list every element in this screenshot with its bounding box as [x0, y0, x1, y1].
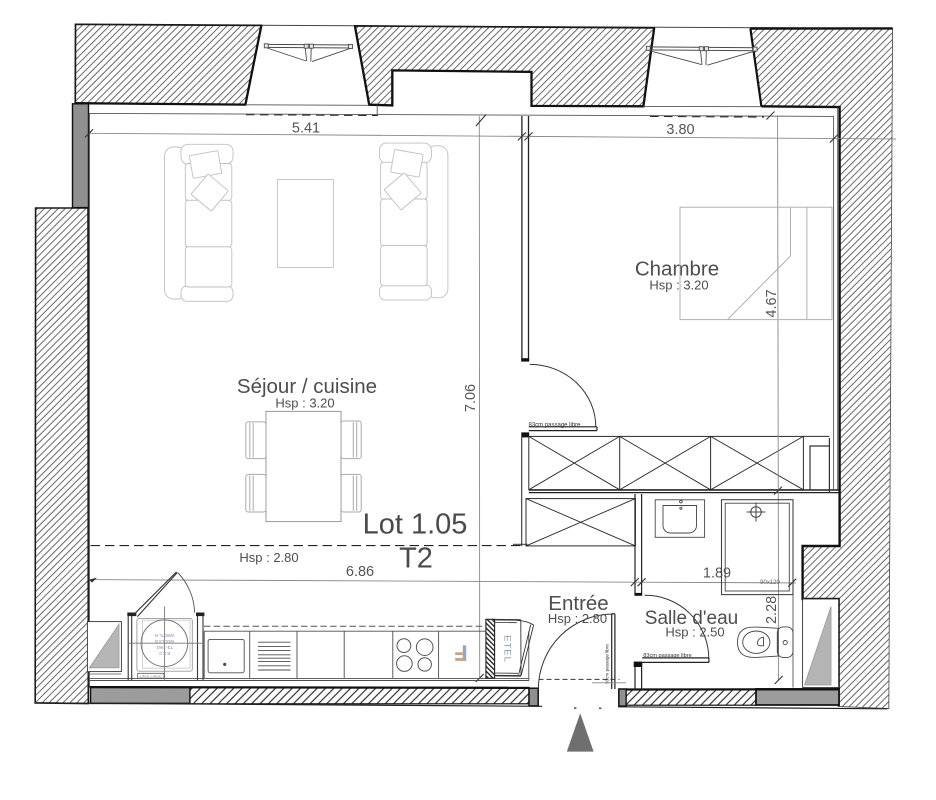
- svg-text:83cm passage libre: 83cm passage libre: [643, 653, 692, 659]
- svg-text:ETEL: ETEL: [502, 635, 513, 663]
- svg-text:7.06: 7.06: [463, 384, 479, 412]
- svg-text:5.41: 5.41: [292, 121, 320, 137]
- svg-text:W0CL8 B: W0CL8 B: [155, 639, 175, 644]
- svg-text:83cm passage libre: 83cm passage libre: [528, 422, 581, 428]
- svg-text:Hsp : 2.50: Hsp : 2.50: [665, 624, 724, 639]
- svg-text:Lot 1.05: Lot 1.05: [363, 509, 468, 541]
- svg-text:WB0TL N: WB0TL N: [155, 633, 175, 638]
- svg-text:B 8 C: B 8 C: [158, 651, 170, 656]
- svg-text:6.86: 6.86: [346, 564, 374, 580]
- svg-text:4.67: 4.67: [764, 289, 780, 317]
- svg-text:90x120: 90x120: [760, 580, 780, 586]
- svg-text:2.28: 2.28: [764, 596, 780, 624]
- svg-text:3.80: 3.80: [666, 122, 694, 138]
- svg-text:LAVE-LINGE: LAVE-LINGE: [140, 675, 163, 679]
- svg-text:T3-1961: T3-1961: [156, 645, 174, 650]
- svg-text:93cm passage libre: 93cm passage libre: [605, 644, 610, 684]
- svg-text:Hsp : 2.80: Hsp : 2.80: [239, 550, 298, 565]
- svg-text:Hsp : 3.20: Hsp : 3.20: [275, 396, 334, 411]
- svg-text:Hsp : 3.20: Hsp : 3.20: [649, 278, 708, 293]
- svg-text:1.89: 1.89: [703, 565, 731, 581]
- svg-text:Hsp : 2.80: Hsp : 2.80: [548, 611, 607, 626]
- svg-text:T2: T2: [399, 542, 433, 574]
